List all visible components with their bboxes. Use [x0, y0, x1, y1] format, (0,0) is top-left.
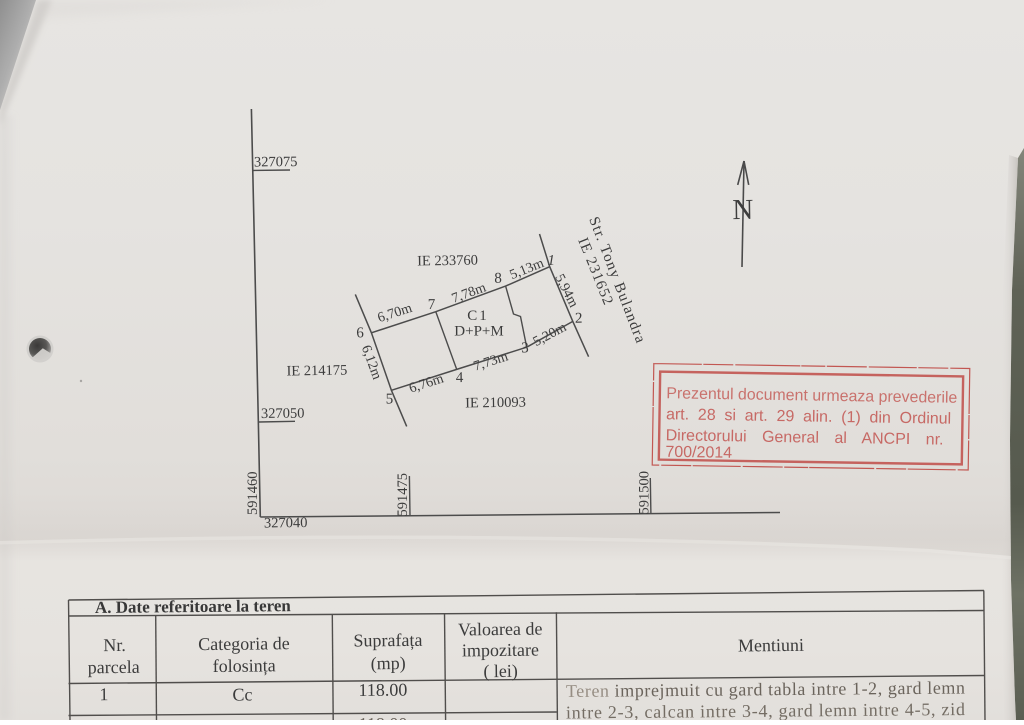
svg-text:1: 1 [547, 253, 555, 269]
svg-text:1: 1 [99, 684, 108, 704]
svg-text:118.00: 118.00 [359, 714, 408, 720]
svg-text:4: 4 [456, 370, 464, 386]
svg-text:C1: C1 [467, 308, 489, 324]
svg-text:Nr.: Nr. [103, 635, 126, 655]
svg-text:327050: 327050 [261, 406, 305, 422]
svg-text:D+P+M: D+P+M [454, 324, 503, 340]
svg-text:Teren imprejmuit cu gard tabl: Teren imprejmuit cu gard tabla intre 1-2… [566, 678, 965, 701]
svg-text:3: 3 [521, 340, 529, 356]
svg-text:IE 210093: IE 210093 [465, 394, 526, 411]
svg-text:591475: 591475 [395, 473, 411, 517]
svg-text:IE 233760: IE 233760 [417, 252, 478, 269]
svg-text:parcela: parcela [88, 657, 140, 678]
svg-text:Suprafața: Suprafața [353, 630, 422, 651]
svg-text:A. Date referitoare la teren: A. Date referitoare la teren [95, 596, 292, 617]
svg-text:327040: 327040 [264, 515, 308, 531]
svg-text:( lei): ( lei) [483, 661, 518, 682]
svg-text:6: 6 [356, 325, 364, 341]
svg-text:700/2014: 700/2014 [665, 444, 732, 462]
svg-text:Cc: Cc [232, 684, 252, 704]
svg-text:intre 2-3, calcan intre 3-4,: intre 2-3, calcan intre 3-4, gard lemn i… [566, 699, 965, 720]
svg-text:591500: 591500 [637, 471, 653, 515]
svg-text:591460: 591460 [245, 472, 261, 516]
svg-text:8: 8 [494, 271, 502, 287]
svg-text:Categoria de: Categoria de [198, 633, 290, 654]
svg-text:118.00: 118.00 [358, 680, 407, 700]
svg-text:Valoarea de: Valoarea de [458, 619, 543, 640]
svg-text:327075: 327075 [254, 154, 298, 170]
svg-text:Mentiuni: Mentiuni [738, 635, 804, 656]
svg-text:(mp): (mp) [371, 653, 406, 674]
svg-text:2: 2 [575, 311, 583, 327]
svg-text:N: N [732, 194, 753, 226]
svg-text:impozitare: impozitare [462, 640, 539, 661]
svg-text:folosința: folosința [213, 655, 276, 676]
svg-text:7: 7 [428, 297, 436, 313]
svg-text:5: 5 [386, 391, 394, 407]
svg-text:IE 214175: IE 214175 [286, 362, 347, 379]
